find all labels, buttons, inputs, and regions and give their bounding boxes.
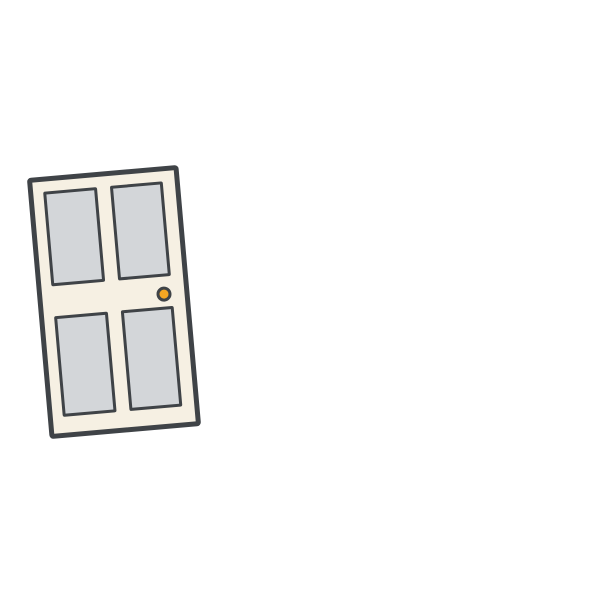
door-illustration[interactable] [27, 165, 201, 439]
door-panel-top-left [43, 187, 106, 286]
door-panel-bottom-left [54, 311, 117, 417]
door-knob-icon [156, 286, 172, 302]
canvas [0, 0, 600, 600]
door-panel-bottom-right [121, 305, 182, 411]
door-panel-top-right [110, 181, 171, 280]
